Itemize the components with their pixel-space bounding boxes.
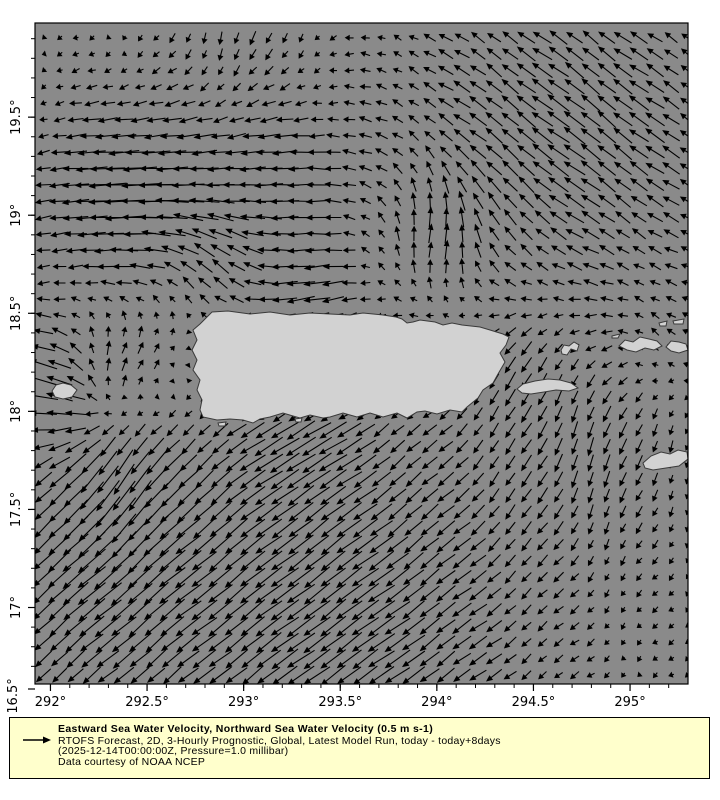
island-islet-south-1 — [295, 418, 302, 422]
x-tick-label: 295° — [614, 695, 645, 710]
island-puerto-rico — [192, 311, 509, 423]
legend-title: Eastward Sea Water Velocity, Northward S… — [58, 724, 709, 735]
y-tick-label: 17.5° — [9, 492, 24, 527]
y-tick-label: 18.5° — [9, 296, 24, 331]
y-tick-label: 17° — [9, 596, 24, 619]
y-tick-label: 19° — [9, 204, 24, 227]
y-corner-tick-label: 16.5° — [6, 678, 21, 712]
erddap-vector-plot-page: 292°292.5°293°293.5°294°294.5°295°19.5°1… — [0, 0, 720, 800]
y-tick-label: 18° — [9, 400, 24, 423]
x-tick-label: 292° — [35, 695, 66, 710]
legend-line-credit: Data courtesy of NOAA NCEP — [58, 757, 709, 768]
legend-box: Eastward Sea Water Velocity, Northward S… — [9, 717, 710, 779]
x-tick-label: 293° — [228, 695, 259, 710]
x-tick-label: 294° — [421, 695, 452, 710]
island-islet-south-2 — [218, 422, 226, 426]
y-tick-label: 19.5° — [9, 99, 24, 134]
x-tick-label: 293.5° — [318, 695, 362, 710]
x-tick-label: 294.5° — [512, 695, 556, 710]
reference-arrow-icon — [22, 730, 52, 749]
velocity-quiver-map: 292°292.5°293°293.5°294°294.5°295°19.5°1… — [0, 0, 720, 712]
x-tick-label: 292.5° — [125, 695, 169, 710]
